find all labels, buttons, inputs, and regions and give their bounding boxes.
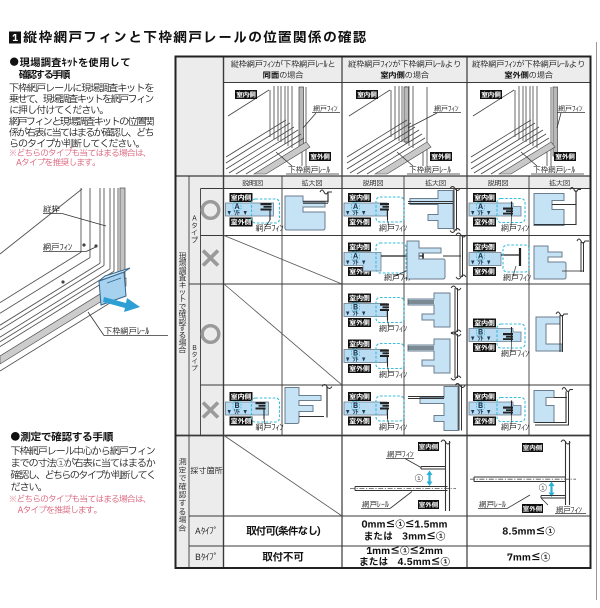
svg-text:網戸ﾌｨﾝ: 網戸ﾌｨﾝ (379, 422, 407, 434)
svg-text:8.5mm≦①: 8.5mm≦① (502, 526, 555, 540)
svg-text:網戸ﾌｨﾝ: 網戸ﾌｨﾝ (387, 450, 414, 461)
svg-text:拡大図: 拡大図 (548, 180, 570, 190)
svg-text:ｿﾄ: ｿﾄ (477, 258, 483, 268)
svg-text:●測定で確認する手順: ●測定で確認する手順 (10, 430, 114, 446)
svg-text:網戸ﾌｨﾝ: 網戸ﾌｨﾝ (256, 223, 284, 235)
svg-text:室外側: 室外側 (474, 416, 495, 426)
svg-text:網戸ﾌｨﾝ: 網戸ﾌｨﾝ (558, 104, 583, 115)
svg-text:室外側: 室外側 (349, 318, 370, 328)
svg-text:網戸ﾌｨﾝ: 網戸ﾌｨﾝ (42, 241, 72, 254)
svg-text:室外側: 室外側 (349, 364, 370, 374)
svg-text:網戸ﾌｨﾝ: 網戸ﾌｨﾝ (379, 324, 407, 336)
svg-text:説明図: 説明図 (488, 179, 509, 190)
svg-text:室外側: 室外側 (555, 152, 575, 162)
svg-text:ｿﾄ: ｿﾄ (352, 258, 358, 268)
svg-text:同面の場合: 同面の場合 (263, 69, 304, 82)
svg-text:室内側: 室内側 (236, 90, 256, 100)
svg-text:室外側: 室外側 (231, 217, 252, 227)
svg-text:網戸ﾌｨﾝ: 網戸ﾌｨﾝ (379, 370, 407, 382)
svg-text:下枠網戸ﾚｰﾙ: 下枠網戸ﾚｰﾙ (533, 166, 576, 177)
svg-text:室外側: 室外側 (349, 217, 370, 227)
svg-text:ｿﾄ: ｿﾄ (234, 407, 240, 417)
svg-text:室外側: 室外側 (474, 343, 495, 353)
svg-text:室外側: 室外側 (419, 500, 438, 510)
svg-text:室内側: 室内側 (419, 442, 438, 452)
svg-text:現場調査キットで確認する場合: 現場調査キットで確認する場合 (178, 252, 187, 357)
svg-text:縦枠: 縦枠 (43, 203, 60, 216)
svg-text:ｿﾄ: ｿﾄ (234, 208, 240, 218)
svg-text:室外側の場合: 室外側の場合 (504, 69, 553, 82)
svg-text:説明図: 説明図 (363, 179, 384, 190)
svg-text:室外側: 室外側 (349, 416, 370, 426)
svg-text:下枠網戸ﾚｰﾙ: 下枠網戸ﾚｰﾙ (409, 166, 452, 177)
svg-text:室外側: 室外側 (474, 217, 495, 227)
svg-text:室外側: 室外側 (310, 152, 330, 162)
svg-text:室外側: 室外側 (431, 152, 451, 162)
svg-text:室内側: 室内側 (523, 443, 542, 453)
svg-text:縦枠網戸フィンと下枠網戸レールの位置関係の確認: 縦枠網戸フィンと下枠網戸レールの位置関係の確認 (24, 28, 368, 48)
svg-text:室外側: 室外側 (523, 504, 542, 514)
svg-text:または 4.5mm≦①: または 4.5mm≦① (359, 556, 450, 570)
svg-text:または 3mm≦①: または 3mm≦① (364, 531, 446, 545)
svg-text:網戸ﾌｨﾝ: 網戸ﾌｨﾝ (256, 422, 284, 434)
svg-text:Aﾀｲﾌﾟ: Aﾀｲﾌﾟ (195, 525, 218, 538)
svg-text:1: 1 (12, 32, 18, 46)
svg-text:7mm≦①: 7mm≦① (507, 552, 551, 566)
svg-text:網戸ﾌｨﾝ: 網戸ﾌｨﾝ (379, 223, 407, 235)
svg-text:室外側: 室外側 (474, 267, 495, 277)
svg-text:網戸ﾌｨﾝ: 網戸ﾌｨﾝ (556, 506, 582, 517)
svg-text:①: ① (539, 482, 548, 495)
svg-text:説明図: 説明図 (242, 179, 263, 190)
svg-text:測定で確認する場合: 測定で確認する場合 (178, 458, 187, 535)
svg-text:室内側: 室内側 (357, 90, 377, 100)
svg-text:網戸ﾌｨﾝ: 網戸ﾌｨﾝ (501, 422, 529, 434)
svg-text:ｿﾄ: ｿﾄ (352, 208, 358, 218)
svg-text:Aタイプを推奨します。: Aタイプを推奨します。 (18, 504, 102, 517)
svg-text:ｿﾄ: ｿﾄ (352, 309, 358, 319)
svg-text:Bﾀｲﾌﾟ: Bﾀｲﾌﾟ (195, 551, 218, 564)
svg-text:Aタイプを推奨します。: Aタイプを推奨します。 (16, 157, 100, 170)
svg-text:網戸ﾌｨﾝ: 網戸ﾌｨﾝ (501, 223, 529, 235)
svg-text:網戸ﾚｰﾙ: 網戸ﾚｰﾙ (479, 500, 507, 511)
svg-text:採寸箇所: 採寸箇所 (190, 465, 223, 478)
svg-text:網戸ﾌｨﾝ: 網戸ﾌｨﾝ (501, 349, 529, 361)
svg-text:網戸ﾌｨﾝ: 網戸ﾌｨﾝ (434, 104, 459, 115)
svg-text:網戸ﾌｨﾝ: 網戸ﾌｨﾝ (313, 104, 338, 115)
svg-text:ｿﾄ: ｿﾄ (477, 407, 483, 417)
svg-text:室外側: 室外側 (231, 416, 252, 426)
svg-text:ｿﾄ: ｿﾄ (352, 355, 358, 365)
svg-text:下枠網戸ﾚｰﾙ: 下枠網戸ﾚｰﾙ (288, 166, 331, 177)
svg-text:ｿﾄ: ｿﾄ (477, 334, 483, 344)
svg-text:下枠網戸ﾚｰﾙ: 下枠網戸ﾚｰﾙ (104, 325, 150, 338)
svg-text:①: ① (415, 473, 424, 486)
svg-text:室内側の場合: 室内側の場合 (380, 69, 429, 82)
svg-text:室内側: 室内側 (481, 90, 501, 100)
svg-text:取付可(条件なし): 取付可(条件なし) (246, 524, 321, 540)
svg-text:拡大図: 拡大図 (301, 180, 323, 190)
svg-text:網戸ﾌｨﾝ: 網戸ﾌｨﾝ (503, 273, 531, 285)
svg-text:網戸ﾚｰﾙ: 網戸ﾚｰﾙ (362, 500, 390, 511)
svg-text:拡大図: 拡大図 (424, 180, 446, 190)
svg-text:ｿﾄ: ｿﾄ (352, 407, 358, 417)
svg-text:取付不可: 取付不可 (262, 550, 304, 566)
svg-text:ｿﾄ: ｿﾄ (477, 208, 483, 218)
